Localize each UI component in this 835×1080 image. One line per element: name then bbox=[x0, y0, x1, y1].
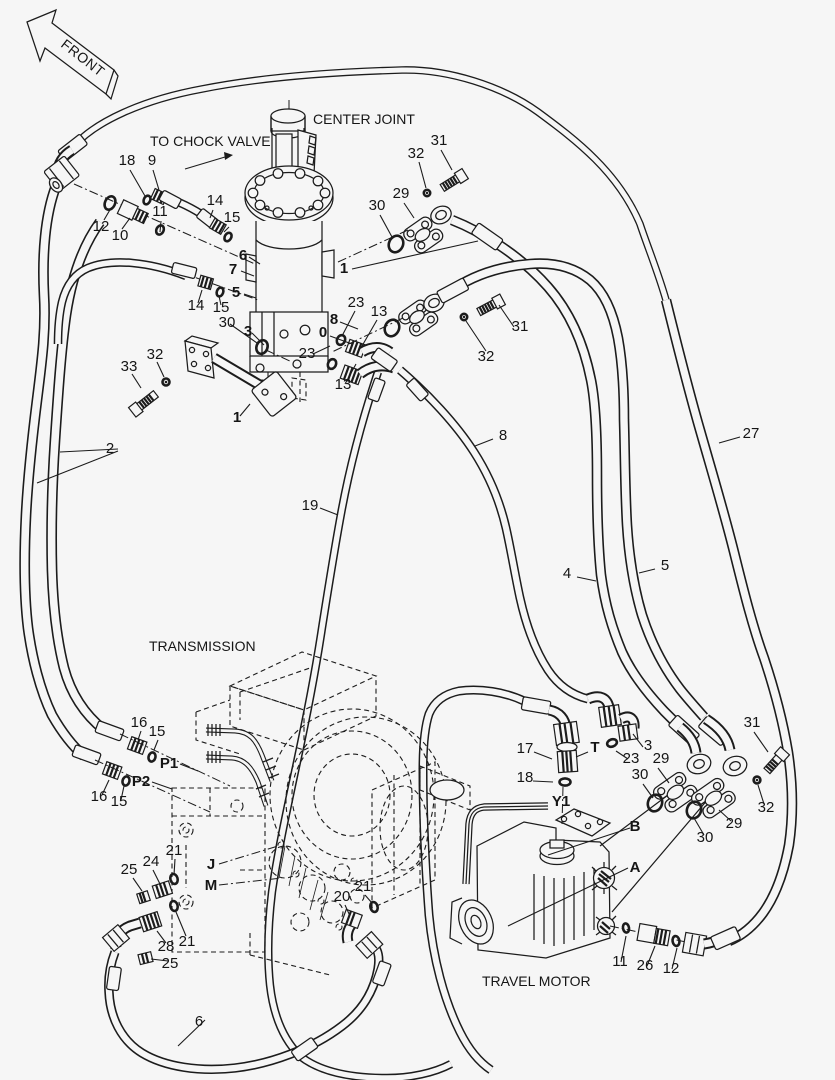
svg-text:32: 32 bbox=[147, 346, 164, 363]
svg-text:6: 6 bbox=[195, 1013, 203, 1030]
svg-text:0: 0 bbox=[319, 324, 327, 341]
svg-text:23: 23 bbox=[623, 750, 640, 767]
svg-text:5: 5 bbox=[661, 557, 669, 574]
svg-text:12: 12 bbox=[93, 218, 110, 235]
svg-text:J: J bbox=[207, 856, 215, 873]
svg-text:TO CHOCK VALVE: TO CHOCK VALVE bbox=[150, 133, 271, 149]
svg-text:23: 23 bbox=[348, 294, 365, 311]
svg-text:21: 21 bbox=[166, 842, 183, 859]
svg-text:M: M bbox=[205, 877, 218, 894]
svg-text:14: 14 bbox=[188, 297, 205, 314]
svg-text:18: 18 bbox=[517, 769, 534, 786]
svg-text:T: T bbox=[590, 739, 599, 756]
svg-text:25: 25 bbox=[121, 861, 138, 878]
svg-text:31: 31 bbox=[744, 714, 761, 731]
svg-text:2: 2 bbox=[106, 440, 114, 457]
svg-text:12: 12 bbox=[663, 960, 680, 977]
svg-text:8: 8 bbox=[330, 311, 338, 328]
svg-text:16: 16 bbox=[131, 714, 148, 731]
svg-text:32: 32 bbox=[758, 799, 775, 816]
svg-text:30: 30 bbox=[697, 829, 714, 846]
svg-text:B: B bbox=[630, 818, 641, 835]
svg-text:10: 10 bbox=[112, 227, 129, 244]
svg-text:1: 1 bbox=[340, 260, 348, 277]
svg-text:28: 28 bbox=[158, 938, 175, 955]
svg-text:29: 29 bbox=[726, 815, 743, 832]
svg-text:21: 21 bbox=[355, 878, 372, 895]
svg-text:9: 9 bbox=[148, 152, 156, 169]
svg-text:26: 26 bbox=[637, 957, 654, 974]
svg-text:P1: P1 bbox=[160, 755, 178, 772]
svg-text:CENTER JOINT: CENTER JOINT bbox=[313, 111, 415, 127]
svg-text:29: 29 bbox=[653, 750, 670, 767]
svg-text:23: 23 bbox=[299, 345, 316, 362]
svg-text:7: 7 bbox=[229, 261, 237, 278]
svg-text:13: 13 bbox=[371, 303, 388, 320]
svg-text:31: 31 bbox=[512, 318, 529, 335]
svg-text:A: A bbox=[630, 859, 641, 876]
svg-text:30: 30 bbox=[632, 766, 649, 783]
svg-text:33: 33 bbox=[121, 358, 138, 375]
svg-text:1: 1 bbox=[233, 409, 241, 426]
svg-text:6: 6 bbox=[239, 247, 247, 264]
svg-text:24: 24 bbox=[143, 853, 160, 870]
svg-text:27: 27 bbox=[743, 425, 760, 442]
svg-text:19: 19 bbox=[302, 497, 319, 514]
svg-text:15: 15 bbox=[111, 793, 128, 810]
svg-text:Y1: Y1 bbox=[552, 793, 570, 810]
svg-text:5: 5 bbox=[232, 284, 240, 301]
svg-text:11: 11 bbox=[152, 203, 168, 220]
svg-text:TRANSMISSION: TRANSMISSION bbox=[149, 638, 256, 654]
svg-text:3: 3 bbox=[244, 323, 252, 340]
svg-text:11: 11 bbox=[612, 953, 628, 970]
svg-text:8: 8 bbox=[499, 427, 507, 444]
svg-text:P2: P2 bbox=[132, 773, 150, 790]
svg-text:30: 30 bbox=[369, 197, 386, 214]
svg-text:32: 32 bbox=[478, 348, 495, 365]
svg-text:13: 13 bbox=[335, 376, 352, 393]
svg-text:15: 15 bbox=[149, 723, 166, 740]
svg-text:16: 16 bbox=[91, 788, 108, 805]
svg-text:32: 32 bbox=[408, 145, 425, 162]
svg-text:21: 21 bbox=[179, 933, 196, 950]
svg-text:3: 3 bbox=[644, 737, 652, 754]
svg-text:20: 20 bbox=[334, 888, 351, 905]
svg-text:31: 31 bbox=[431, 132, 448, 149]
svg-text:4: 4 bbox=[563, 565, 571, 582]
svg-text:18: 18 bbox=[119, 152, 136, 169]
svg-text:15: 15 bbox=[224, 209, 241, 226]
svg-text:TRAVEL MOTOR: TRAVEL MOTOR bbox=[482, 973, 591, 989]
svg-text:17: 17 bbox=[517, 740, 534, 757]
svg-text:29: 29 bbox=[393, 185, 410, 202]
svg-text:25: 25 bbox=[162, 955, 179, 972]
svg-text:30: 30 bbox=[219, 314, 236, 331]
svg-text:14: 14 bbox=[207, 192, 224, 209]
